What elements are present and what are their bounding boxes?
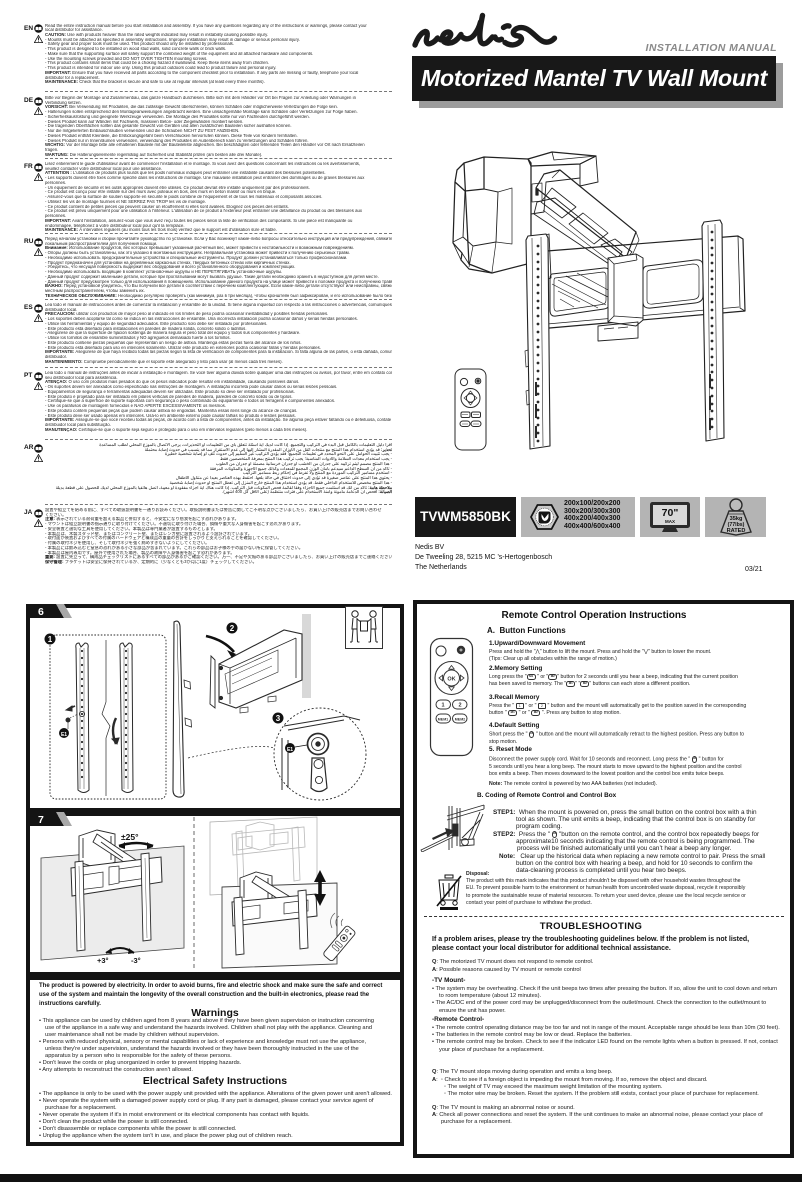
svg-text:2: 2 (458, 703, 461, 709)
svg-text:MEM2: MEM2 (455, 718, 465, 722)
svg-text:3: 3 (276, 714, 281, 723)
svg-text:1: 1 (48, 635, 53, 644)
svg-text:70": 70" (662, 507, 679, 519)
svg-text:E1: E1 (287, 747, 293, 753)
svg-text:-3°: -3° (131, 956, 141, 965)
svg-text:E1: E1 (61, 732, 67, 738)
svg-text:OK: OK (447, 677, 455, 683)
svg-text:2: 2 (230, 624, 235, 633)
svg-text:MEM1: MEM1 (438, 718, 448, 722)
svg-text:+3°: +3° (97, 956, 109, 965)
svg-text:1: 1 (441, 703, 444, 709)
svg-text:RATED: RATED (727, 528, 746, 534)
svg-text:±25°: ±25° (121, 832, 139, 842)
svg-text:MAX: MAX (665, 519, 675, 524)
